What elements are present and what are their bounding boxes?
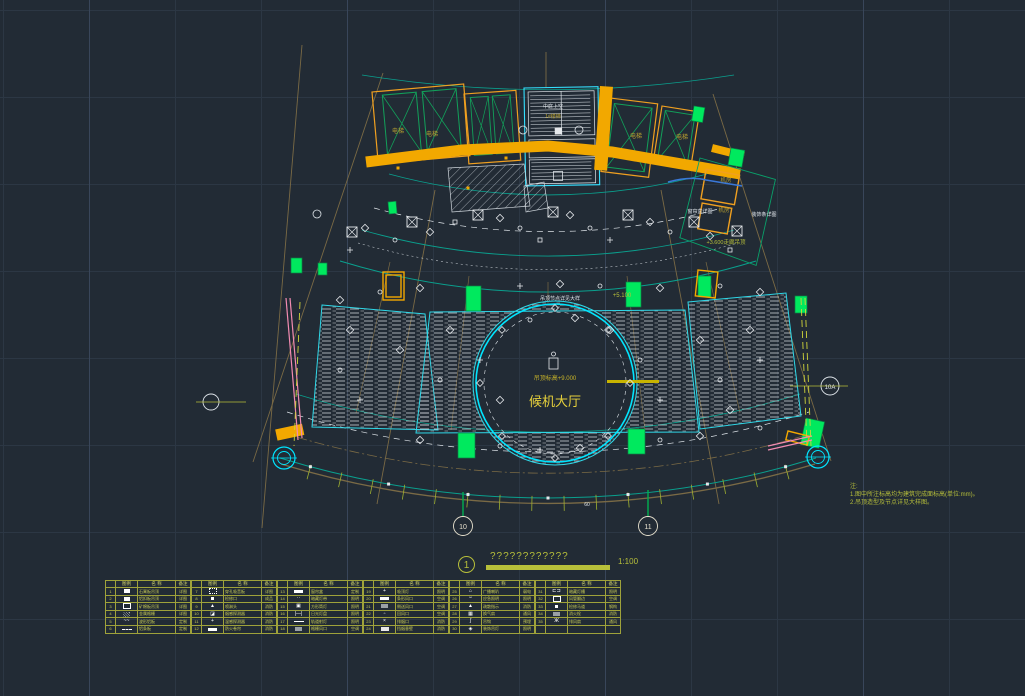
legend-cell: 消火栓: [568, 611, 606, 619]
legend-cell: 详图: [262, 588, 277, 596]
legend-cell: 检修口: [224, 596, 262, 604]
escalator-hatch: [448, 164, 548, 212]
legend-cell: 消防: [262, 603, 277, 611]
legend-cell: 空调: [434, 603, 449, 611]
legend-cell: 23: [363, 618, 374, 626]
curtain-label: 窗帘盒详图: [687, 208, 712, 215]
legend-cell: 3: [105, 603, 116, 611]
legend-cell: 33: [535, 603, 546, 611]
axis-bubble-cyan-left: [271, 447, 297, 469]
legend-cell: 喷淋头: [224, 603, 262, 611]
drawing-scale: 1:100: [618, 557, 638, 566]
legend-symbol-cell: ▦: [460, 611, 482, 619]
legend-header-cell: 名 称: [396, 580, 434, 588]
level-label: +5.100: [613, 293, 632, 299]
legend-header-cell: 名 称: [310, 580, 348, 588]
elevator-label: 电梯: [392, 127, 404, 135]
legend-cell: 矿棉板吊顶: [138, 603, 176, 611]
legend-cell: 16: [277, 611, 288, 619]
void-label: 中庭上空: [543, 103, 563, 110]
legend-cell: 吊钩: [482, 618, 520, 626]
legend-cell: 28: [449, 611, 460, 619]
room-label: 机房: [720, 176, 732, 184]
legend-header-cell: 名 称: [482, 580, 520, 588]
legend-symbol-cell: [288, 618, 310, 626]
legend-cell: 11: [191, 618, 202, 626]
legend-cell: 成品: [262, 596, 277, 604]
legend-cell: 温感探测器: [224, 618, 262, 626]
legend-symbol-cell: ⊏⊐: [546, 588, 568, 596]
elevator-label: 电梯: [426, 130, 438, 138]
legend-cell: 24: [363, 626, 374, 634]
legend-cell: 日光灯盘: [310, 611, 348, 619]
legend-cell: 防火卷帘: [224, 626, 262, 634]
axis-label-bottom-2: 11: [644, 524, 651, 531]
legend-header-cell: 名 称: [568, 580, 606, 588]
legend-header-cell: [277, 580, 288, 588]
legend-cell: 铝扣板吊顶: [138, 596, 176, 604]
legend-symbol-cell: [374, 596, 396, 604]
legend-cell: 窗帘盒: [310, 588, 348, 596]
legend-cell: 消防: [434, 618, 449, 626]
legend-symbol-cell: ··: [288, 596, 310, 604]
legend-cell: 消防: [520, 603, 535, 611]
cad-viewport[interactable]: 10A 10 11 吊顶标高+9.000 候机大厅 电梯 电梯 电梯 电梯 中庭…: [0, 0, 1025, 696]
legend-cell: 21: [363, 603, 374, 611]
legend-cell: 照明: [348, 596, 363, 604]
legend-header-cell: 图例: [202, 580, 224, 588]
legend-cell: 10: [191, 611, 202, 619]
legend-symbol-cell: [202, 596, 224, 604]
legend-cell: 照明: [520, 596, 535, 604]
legend-header-cell: 图例: [460, 580, 482, 588]
stair-label: 1#楼梯: [545, 113, 561, 120]
legend-symbol-cell: [546, 611, 568, 619]
legend-cell: 吸顶灯: [396, 588, 434, 596]
legend-symbol-cell: +: [202, 618, 224, 626]
legend-cell: 7: [191, 588, 202, 596]
legend-symbol-cell: ◪: [202, 611, 224, 619]
legend-cell: 换气扇: [482, 611, 520, 619]
legend-group: 图例名 称备注1石膏板吊顶详图2铝扣板吊顶详图3矿棉板吊顶详图4金属格栅详图5~…: [105, 580, 191, 634]
legend-cell: 35: [535, 618, 546, 626]
legend-symbol-cell: +: [374, 588, 396, 596]
legend-cell: 30: [449, 626, 460, 634]
legend-cell: 排烟口: [396, 618, 434, 626]
legend-cell: 15: [277, 603, 288, 611]
legend-symbol-cell: ▲: [460, 603, 482, 611]
legend-cell: 疏散指示: [482, 603, 520, 611]
legend-cell: 详图: [176, 603, 191, 611]
legend-header-cell: 图例: [116, 580, 138, 588]
legend-cell: 钢构: [606, 603, 621, 611]
legend-cell: 弱电: [520, 588, 535, 596]
legend-group: 图例名 称备注7穿孔吸音板详图8检修口成品9▲喷淋头消防10◪烟感探测器消防11…: [191, 580, 277, 634]
drawing-title-text: ????????????: [490, 551, 569, 562]
room-label: 机房: [718, 206, 730, 214]
legend-symbol-cell: [288, 588, 310, 596]
legend-symbol-cell: [202, 626, 224, 634]
legend-header-cell: 备注: [520, 580, 535, 588]
legend-symbol-cell: [116, 588, 138, 596]
legend-header-cell: 名 称: [224, 580, 262, 588]
legend-cell: 照明: [520, 626, 535, 634]
legend-cell: 检修马道: [568, 603, 606, 611]
column-symbols: [347, 207, 742, 237]
legend-cell: 照明: [348, 603, 363, 611]
legend-symbol-cell: ×: [374, 618, 396, 626]
legend-symbol-cell: |—|: [288, 611, 310, 619]
legend-cell: 暗藏灯带: [310, 596, 348, 604]
legend-cell: 穿孔吸音板: [224, 588, 262, 596]
legend-cell: 消防: [434, 626, 449, 634]
legend-symbol-cell: [116, 603, 138, 611]
legend-group: 图例名 称备注13窗帘盒定制14··暗藏灯带照明15▣方形筒灯照明16|—|日光…: [277, 580, 363, 634]
legend-cell: 格栅风口: [310, 626, 348, 634]
dim-label: 60: [584, 502, 590, 508]
legend-cell: 4: [105, 611, 116, 619]
legend-cell: 5: [105, 618, 116, 626]
legend-cell: 波形铝板: [138, 618, 176, 626]
legend-cell: 12: [191, 626, 202, 634]
legend-header-cell: [449, 580, 460, 588]
legend-symbol-cell: [116, 596, 138, 604]
legend-group: 图例名 称备注25⌂广播喇叭弱电26▫▫应急照明照明27▲疏散指示消防28▦换气…: [449, 580, 535, 634]
legend-cell: 侧送风口: [396, 603, 434, 611]
axis-bubble-left: [196, 394, 246, 410]
legend-cell: 6: [105, 626, 116, 634]
legend-cell: 预埋: [520, 618, 535, 626]
notes-line-2: 2.吊顶造型及节点详见大样图。: [850, 499, 1000, 507]
legend-cell: 18: [277, 626, 288, 634]
legend-header-cell: 图例: [374, 580, 396, 588]
legend-cell: 铝条板: [138, 626, 176, 634]
legend-cell: 照明: [606, 588, 621, 596]
legend-header-cell: 备注: [606, 580, 621, 588]
drawing-index-bubble: 1: [458, 556, 475, 573]
hall-elevation-label: 吊顶标高+9.000: [534, 374, 577, 382]
legend-symbol-cell: [288, 626, 310, 634]
legend-symbol-cell: ʃ: [460, 618, 482, 626]
legend-cell: 空调: [348, 626, 363, 634]
legend-cell: 27: [449, 603, 460, 611]
legend-cell: 空调: [434, 596, 449, 604]
legend-header-cell: 备注: [348, 580, 363, 588]
panel-right: [688, 293, 801, 429]
legend-cell: 风管翻边: [568, 596, 606, 604]
legend-header-cell: 名 称: [138, 580, 176, 588]
legend-symbol-cell: ▲: [202, 603, 224, 611]
axis-label-right: 10A: [825, 385, 836, 391]
legend-cell: 26: [449, 596, 460, 604]
title-underline-bar: [486, 565, 610, 570]
legend-cell: 8: [191, 596, 202, 604]
legend-cell: 照明: [348, 618, 363, 626]
legend-cell: 29: [449, 618, 460, 626]
legend-symbol-cell: [374, 626, 396, 634]
legend-symbol-cell: ▫▫: [460, 596, 482, 604]
legend-symbol-cell: [202, 588, 224, 596]
legend-symbol-cell: ⌂: [460, 588, 482, 596]
legend-header-cell: 图例: [288, 580, 310, 588]
legend-cell: 详图: [176, 588, 191, 596]
legend-group: 图例名 称备注19+吸顶灯照明20条形风口空调21侧送风口空调22▫回风口空调2…: [363, 580, 449, 634]
legend-cell: [535, 626, 546, 634]
node-label: 吊顶节点详见大样: [540, 295, 580, 302]
legend-cell: 石膏板吊顶: [138, 588, 176, 596]
legend-header-cell: [105, 580, 116, 588]
legend-cell: 金属格栅: [138, 611, 176, 619]
legend-symbol-cell: Ж: [546, 618, 568, 626]
legend-cell: 通风: [520, 611, 535, 619]
legend-symbol-cell: ▫: [374, 611, 396, 619]
hall-name-label: 候机大厅: [529, 394, 581, 409]
legend-header-cell: 图例: [546, 580, 568, 588]
legend-group: 图例名 称备注31⊏⊐暗藏灯槽照明32风管翻边空调33检修马道钢构34消火栓消防…: [535, 580, 621, 634]
legend-header-cell: [535, 580, 546, 588]
legend-symbol-cell: ◈: [460, 626, 482, 634]
legend-header-cell: [191, 580, 202, 588]
legend-symbol-cell: [374, 603, 396, 611]
legend-symbol-cell: [546, 626, 568, 634]
legend-symbol-cell: [546, 603, 568, 611]
legend-cell: 25: [449, 588, 460, 596]
elevator-label: 电梯: [630, 132, 642, 140]
stair-block: [524, 87, 600, 186]
legend-cell: 应急照明: [482, 596, 520, 604]
legend-cell: 空调: [606, 596, 621, 604]
legend-cell: 32: [535, 596, 546, 604]
legend-symbol-cell: [546, 596, 568, 604]
legend-cell: 9: [191, 603, 202, 611]
notes-line-1: 1.图中所注标高均为建筑完成面标高(单位:mm)。: [850, 491, 1000, 499]
legend-cell: 挡烟垂壁: [396, 626, 434, 634]
axis-label-bottom-1: 10: [459, 524, 467, 531]
legend-cell: [606, 626, 621, 634]
elevator-label: 电梯: [676, 133, 688, 141]
legend-cell: 20: [363, 596, 374, 604]
legend-cell: 定制: [176, 618, 191, 626]
legend-symbol-cell: [116, 611, 138, 619]
legend-cell: 消防: [606, 611, 621, 619]
legend-cell: 轨道射灯: [310, 618, 348, 626]
legend-cell: 19: [363, 588, 374, 596]
legend-cell: 照明: [348, 611, 363, 619]
legend-cell: 消防: [262, 618, 277, 626]
legend-header-cell: 备注: [262, 580, 277, 588]
legend-cell: 13: [277, 588, 288, 596]
legend-cell: 定制: [348, 588, 363, 596]
legend-cell: 烟感探测器: [224, 611, 262, 619]
legend-cell: 空调: [434, 611, 449, 619]
legend-header-cell: 备注: [434, 580, 449, 588]
legend-header-cell: 备注: [176, 580, 191, 588]
legend-cell: 暗藏灯槽: [568, 588, 606, 596]
legend-cell: 详图: [176, 596, 191, 604]
legend-header-cell: [363, 580, 374, 588]
legend-cell: 回风口: [396, 611, 434, 619]
legend-cell: 方形筒灯: [310, 603, 348, 611]
legend-cell: 17: [277, 618, 288, 626]
material-legend-table: 图例名 称备注1石膏板吊顶详图2铝扣板吊顶详图3矿棉板吊顶详图4金属格栅详图5~…: [105, 580, 621, 634]
drawing-title-block: 1 ???????????? 1:100: [458, 550, 688, 580]
legend-cell: 照明: [434, 588, 449, 596]
axis-bubble-right: 10A: [790, 377, 848, 395]
legend-cell: 消防: [262, 611, 277, 619]
strip-label: 装饰条详图: [751, 211, 776, 218]
legend-cell: 条形风口: [396, 596, 434, 604]
legend-cell: 定制: [176, 626, 191, 634]
legend-cell: 排风扇: [568, 618, 606, 626]
legend-cell: 31: [535, 588, 546, 596]
legend-cell: 通风: [606, 618, 621, 626]
legend-cell: 34: [535, 611, 546, 619]
legend-cell: 14: [277, 596, 288, 604]
legend-symbol-cell: ▣: [288, 603, 310, 611]
legend-cell: 装饰吊灯: [482, 626, 520, 634]
corridor-label: +3.600走廊吊顶: [707, 238, 746, 246]
legend-cell: [568, 626, 606, 634]
legend-cell: 2: [105, 596, 116, 604]
legend-symbol-cell: [116, 626, 138, 634]
legend-cell: 消防: [262, 626, 277, 634]
legend-cell: 详图: [176, 611, 191, 619]
legend-symbol-cell: ~~: [116, 618, 138, 626]
legend-cell: 22: [363, 611, 374, 619]
notes-head: 注:: [850, 483, 1000, 491]
legend-cell: 1: [105, 588, 116, 596]
general-notes: 注: 1.图中所注标高均为建筑完成面标高(单位:mm)。 2.吊顶造型及节点详见…: [850, 483, 1000, 507]
legend-cell: 广播喇叭: [482, 588, 520, 596]
